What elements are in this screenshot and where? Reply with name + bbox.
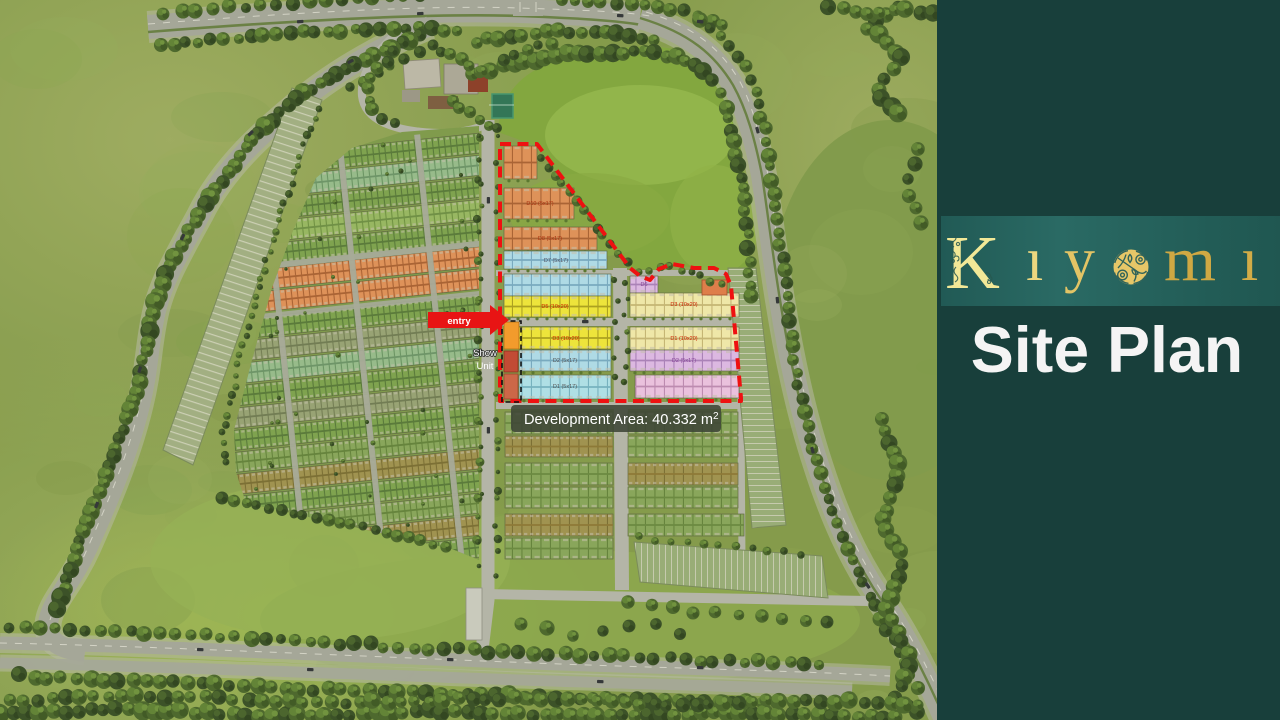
svg-text:y: y (1064, 226, 1095, 294)
svg-text:D1 (10x20): D1 (10x20) (670, 336, 697, 342)
svg-text:Site Plan: Site Plan (971, 314, 1243, 386)
svg-text:D3 (10x20): D3 (10x20) (670, 302, 697, 308)
svg-text:D6: D6 (640, 282, 647, 288)
svg-text:D8 (5x17): D8 (5x17) (538, 236, 562, 242)
svg-text:Development Area: 40.332 m2: Development Area: 40.332 m2 (524, 411, 719, 428)
svg-text:D1 (5x17): D1 (5x17) (553, 384, 577, 390)
svg-text:ı: ı (1026, 226, 1043, 294)
svg-text:Show: Show (473, 348, 497, 359)
svg-text:D3 (10x20): D3 (10x20) (552, 336, 579, 342)
svg-text:D7 (5x17): D7 (5x17) (544, 258, 568, 264)
svg-text:D2 (5x17): D2 (5x17) (553, 358, 577, 364)
svg-text:K: K (945, 221, 1000, 305)
svg-text:D10 (5x17): D10 (5x17) (526, 201, 553, 207)
svg-text:ı: ı (1241, 226, 1258, 294)
svg-text:D5 (10x20): D5 (10x20) (541, 304, 568, 310)
svg-text:D2 (5x17): D2 (5x17) (672, 358, 696, 364)
svg-text:entry: entry (447, 316, 471, 327)
svg-text:m: m (1164, 226, 1216, 294)
svg-text:Unit: Unit (477, 361, 494, 372)
